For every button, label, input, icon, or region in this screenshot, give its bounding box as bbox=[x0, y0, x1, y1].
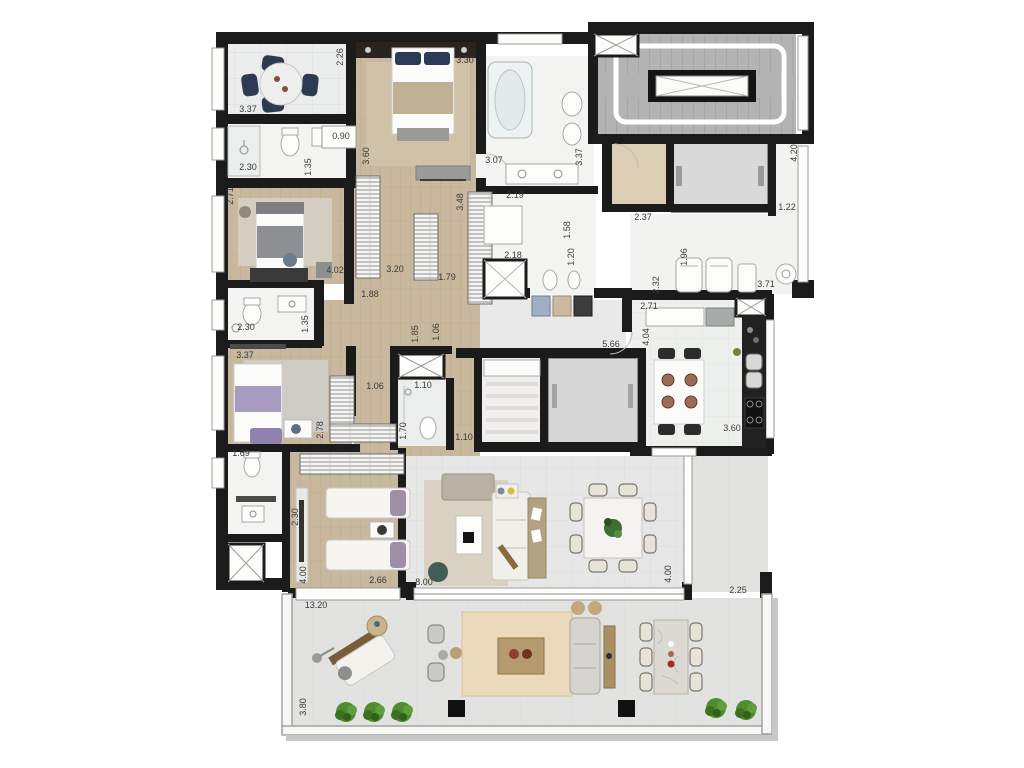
place-setting bbox=[685, 374, 697, 386]
dining-chair bbox=[589, 484, 607, 496]
window-wc bbox=[212, 458, 224, 488]
table-setting bbox=[668, 651, 674, 657]
dimension-label: 4.04 bbox=[641, 328, 651, 346]
sink-bowl bbox=[746, 354, 762, 370]
desk-chair bbox=[291, 424, 301, 434]
kitchen-chair bbox=[684, 424, 701, 435]
window-bath1 bbox=[212, 128, 224, 160]
dimension-label: 4.00 bbox=[663, 565, 673, 583]
bidet-icon bbox=[568, 271, 580, 289]
dimension-label: 3.37 bbox=[574, 148, 584, 166]
dimension-label: 3.71 bbox=[757, 279, 775, 289]
clothes-shirt-blue bbox=[532, 296, 550, 316]
flower-decor bbox=[668, 661, 675, 668]
sink-bowl bbox=[746, 372, 762, 388]
dimension-label: 2.18 bbox=[504, 250, 522, 260]
dimension-label: 4.00 bbox=[298, 566, 308, 584]
chaise-pillow-mauve bbox=[390, 542, 406, 568]
table-setting bbox=[668, 641, 674, 647]
toilet-icon bbox=[562, 92, 582, 116]
pouf bbox=[588, 601, 602, 615]
terrace-armchair bbox=[428, 663, 444, 681]
dimension-label: 2.25 bbox=[729, 585, 747, 595]
counter-utensil bbox=[747, 327, 753, 333]
window-kitchen-south bbox=[652, 448, 696, 456]
dimension-label: 1.85 bbox=[410, 325, 420, 343]
toilet-tank bbox=[244, 298, 260, 305]
parapet-left bbox=[282, 594, 292, 734]
terrace-coffee-table bbox=[498, 638, 544, 674]
round-side-table bbox=[438, 650, 448, 660]
floor-elevator-lobby bbox=[612, 142, 666, 204]
bidet-icon bbox=[563, 123, 581, 145]
clothes-shirt-tan bbox=[553, 296, 571, 316]
sofa bbox=[492, 492, 530, 580]
terrace-column bbox=[618, 700, 635, 717]
terrace-column bbox=[448, 700, 465, 717]
table-decor bbox=[282, 86, 288, 92]
wall-sconce-icon bbox=[365, 47, 371, 53]
dimension-label: 1.96 bbox=[679, 248, 689, 266]
terrace-dining-chair bbox=[690, 623, 702, 641]
dimension-label: 1.88 bbox=[361, 289, 379, 299]
navy-chair bbox=[241, 73, 260, 97]
dimension-label: 3.20 bbox=[386, 264, 404, 274]
sofa-chaise-module bbox=[442, 474, 494, 500]
toilet-icon bbox=[543, 270, 557, 290]
dimension-label: 3.80 bbox=[298, 698, 308, 716]
dimension-label: 1.10 bbox=[455, 432, 473, 442]
wardrobe-den bbox=[300, 454, 404, 474]
dimension-label: 1.06 bbox=[366, 381, 384, 391]
terrace-right-grid bbox=[688, 456, 768, 592]
double-sink-counter bbox=[506, 164, 578, 184]
wardrobe-master-mid bbox=[414, 214, 438, 280]
tv-console bbox=[416, 166, 470, 180]
glass-door-den-terrace bbox=[296, 588, 400, 600]
dimension-label: 2.26 bbox=[335, 48, 345, 66]
bedroom3-blanket-lavender bbox=[235, 386, 281, 412]
window-stair bbox=[798, 36, 808, 130]
glass-wall-living-terrace bbox=[684, 456, 692, 584]
bedroom2-headboard bbox=[256, 202, 304, 214]
dining-chair bbox=[619, 484, 637, 496]
kitchen-chair bbox=[658, 348, 675, 359]
centerpiece-plant-leaf bbox=[604, 518, 612, 526]
shadow-bottom bbox=[286, 735, 778, 741]
window-kitchen bbox=[766, 320, 774, 438]
round-side-table bbox=[450, 647, 462, 659]
toilet-tank bbox=[282, 128, 298, 135]
terrace-dining-chair bbox=[690, 673, 702, 691]
bedroom3-bench bbox=[250, 428, 282, 444]
dimension-label: 2.71 bbox=[225, 187, 235, 205]
parapet-bottom bbox=[282, 726, 772, 735]
dimension-label: 1.69 bbox=[232, 448, 250, 458]
place-setting bbox=[685, 396, 697, 408]
dimension-label: 2.19 bbox=[506, 190, 524, 200]
dimension-label: 2.71 bbox=[640, 301, 658, 311]
elevator-door-rail bbox=[758, 166, 764, 186]
storage-shelf bbox=[484, 360, 540, 376]
dimension-label: 2.30 bbox=[239, 162, 257, 172]
dining-chair bbox=[644, 503, 656, 521]
table-decor bbox=[498, 488, 505, 495]
bedroom-2-furniture bbox=[238, 198, 332, 282]
dimension-label: 2.66 bbox=[369, 575, 387, 585]
wardrobe-master-left bbox=[356, 176, 380, 278]
dining-chair bbox=[619, 560, 637, 572]
dimension-label: 2.30 bbox=[237, 322, 255, 332]
dimension-label: 1.70 bbox=[398, 422, 408, 440]
parapet-right bbox=[762, 594, 772, 734]
dimension-label: 2.78 bbox=[315, 421, 325, 439]
dimension-label: 8.00 bbox=[415, 577, 433, 587]
elevator-door-rail bbox=[552, 384, 557, 408]
terrace-dining-chair bbox=[690, 648, 702, 666]
stair-treads-bottom bbox=[604, 98, 796, 134]
dimension-label: 1.35 bbox=[300, 315, 310, 333]
bathtub-basin bbox=[495, 70, 525, 130]
bowl-decor bbox=[509, 649, 519, 659]
dimension-label: 1.10 bbox=[414, 380, 432, 390]
dining-chair bbox=[570, 503, 582, 521]
place-setting bbox=[662, 396, 674, 408]
pouf bbox=[571, 601, 585, 615]
dimension-label: 4.20 bbox=[789, 144, 799, 162]
round-table bbox=[260, 63, 302, 105]
window-bedroom2 bbox=[212, 196, 224, 272]
terrace-dining-chair bbox=[640, 648, 652, 666]
window-bath2 bbox=[212, 300, 224, 330]
closet-clothes bbox=[532, 296, 592, 316]
navy-chair bbox=[301, 73, 319, 97]
laundry-tub bbox=[776, 264, 796, 284]
terrace-armchair bbox=[428, 625, 444, 643]
elevator-door-rail bbox=[676, 166, 682, 186]
table-decor bbox=[374, 621, 380, 627]
pillow-navy bbox=[395, 52, 421, 65]
dimension-label: 1.79 bbox=[438, 272, 456, 282]
dining-chair bbox=[589, 560, 607, 572]
dimension-label: 3.37 bbox=[236, 350, 254, 360]
dimension-label: 1.20 bbox=[566, 248, 576, 266]
private-elevator bbox=[548, 358, 638, 444]
dimension-label: 1.58 bbox=[562, 221, 572, 239]
chaise-pillow-mauve bbox=[390, 490, 406, 516]
dimension-label: 1.35 bbox=[303, 158, 313, 176]
window-balcony bbox=[212, 48, 224, 110]
kitchen-chair bbox=[684, 348, 701, 359]
dimension-label: 3.60 bbox=[361, 147, 371, 165]
bed-bench bbox=[397, 128, 449, 141]
dimension-label: 0.90 bbox=[332, 131, 350, 141]
kitchen-chair bbox=[658, 424, 675, 435]
dimension-label: 4.02 bbox=[326, 265, 344, 275]
sink-counter bbox=[278, 296, 306, 312]
shadow-right bbox=[772, 598, 778, 738]
master-bedroom-furniture bbox=[366, 48, 470, 180]
wardrobe-hall bbox=[330, 424, 396, 442]
table-decor bbox=[274, 76, 280, 82]
bed-blanket-tan bbox=[393, 82, 453, 114]
dimension-label: 2.37 bbox=[634, 212, 652, 222]
dimension-label: 1.22 bbox=[778, 202, 796, 212]
toilet-icon bbox=[281, 132, 299, 156]
bedroom-3-furniture bbox=[234, 360, 328, 444]
counter-utensil bbox=[753, 337, 759, 343]
kitchen-table bbox=[654, 360, 704, 424]
desk-chair bbox=[283, 253, 297, 267]
elevator-door-rail bbox=[628, 384, 633, 408]
bedroom2-desk bbox=[250, 268, 308, 282]
bedroom2-blanket bbox=[257, 226, 303, 258]
window-master-bath bbox=[498, 34, 562, 44]
terrace-dining-chair bbox=[640, 623, 652, 641]
mirror-shelf bbox=[236, 496, 276, 502]
dimension-label: 3.37 bbox=[239, 104, 257, 114]
pillow-navy bbox=[424, 52, 450, 65]
floor-plan: 2.263.303.370.903.602.301.352.713.073.48… bbox=[0, 0, 1024, 768]
dimension-label: 13.20 bbox=[305, 600, 328, 610]
bowl-decor bbox=[522, 649, 532, 659]
fridge bbox=[706, 308, 734, 326]
dimension-label: 1.06 bbox=[431, 323, 441, 341]
nightstand bbox=[239, 206, 251, 218]
dimension-label: 3.60 bbox=[723, 423, 741, 433]
console-decor bbox=[606, 653, 612, 659]
place-setting bbox=[662, 374, 674, 386]
dimension-label: 3.07 bbox=[485, 155, 503, 165]
wall-sconce-icon bbox=[461, 47, 467, 53]
elevator-1 bbox=[672, 142, 768, 212]
dimension-label: 2.30 bbox=[290, 508, 300, 526]
dining-chair bbox=[644, 535, 656, 553]
floor-lamp bbox=[312, 653, 322, 663]
dining-chair bbox=[570, 535, 582, 553]
terrace-sofa bbox=[570, 618, 600, 694]
dimension-label: 5.66 bbox=[602, 339, 620, 349]
dimension-label: 2.32 bbox=[651, 276, 661, 294]
table-decor bbox=[508, 488, 515, 495]
coffee-table-tray bbox=[463, 532, 474, 543]
centerpiece-plant-leaf bbox=[614, 530, 622, 538]
shelf bbox=[230, 344, 286, 349]
vestibule-cabinet bbox=[484, 206, 522, 244]
table-decor bbox=[377, 525, 387, 535]
cabinet bbox=[738, 264, 756, 292]
window-service-corridor bbox=[798, 146, 808, 282]
terrace-dining-chair bbox=[640, 673, 652, 691]
washbasin bbox=[242, 506, 264, 522]
clothes-shoes bbox=[574, 296, 592, 316]
plant-pot-small bbox=[733, 348, 741, 356]
toilet-icon bbox=[420, 417, 436, 439]
dimension-label: 3.30 bbox=[456, 55, 474, 65]
dimension-label: 3.48 bbox=[455, 193, 465, 211]
window-bedroom3 bbox=[212, 356, 224, 430]
dryer bbox=[706, 258, 732, 292]
